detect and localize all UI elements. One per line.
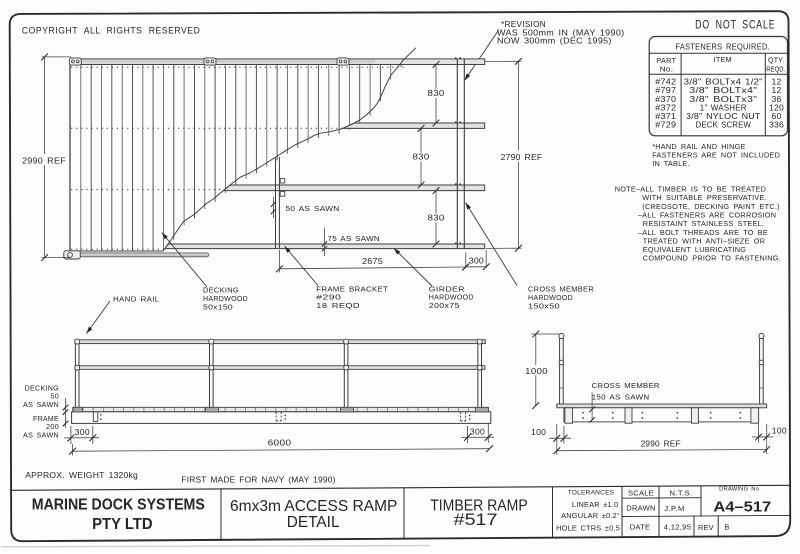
- svg-text:DRAWING No.: DRAWING No.: [719, 486, 761, 492]
- svg-text:DO NOT SCALE: DO NOT SCALE: [695, 17, 775, 31]
- svg-text:100: 100: [772, 426, 787, 435]
- svg-text:18 REQD: 18 REQD: [316, 301, 360, 310]
- svg-text:COPYRIGHT ALL RIGHTS RESERVED: COPYRIGHT ALL RIGHTS RESERVED: [22, 26, 201, 36]
- svg-text:#729: #729: [655, 121, 676, 130]
- svg-text:6mx3m ACCESS RAMP: 6mx3m ACCESS RAMP: [230, 498, 397, 515]
- svg-text:J.P.M: J.P.M: [664, 504, 684, 513]
- svg-text:FIRST MADE FOR NAVY (MAY 1990): FIRST MADE FOR NAVY (MAY 1990): [181, 475, 335, 485]
- svg-text:SCALE: SCALE: [628, 488, 654, 497]
- svg-text:CROSS MEMBER: CROSS MEMBER: [528, 284, 594, 293]
- svg-text:REV: REV: [698, 523, 714, 532]
- svg-text:FASTENERS REQUIRED.: FASTENERS REQUIRED.: [675, 43, 770, 52]
- svg-text:WITH SUITABLE PRESERVATIVE.: WITH SUITABLE PRESERVATIVE.: [642, 193, 767, 202]
- svg-text:APPROX. WEIGHT 1320kg: APPROX. WEIGHT 1320kg: [25, 470, 138, 480]
- svg-text:150x50: 150x50: [528, 302, 560, 311]
- svg-text:2790 REF: 2790 REF: [501, 153, 543, 162]
- svg-text:REQD.: REQD.: [766, 65, 785, 74]
- svg-text:A4–517: A4–517: [713, 499, 771, 516]
- svg-text:75 AS SAWN: 75 AS SAWN: [328, 234, 381, 243]
- svg-text:NOW 300mm (DEC 1995): NOW 300mm (DEC 1995): [497, 37, 612, 46]
- svg-text:AS SAWN: AS SAWN: [23, 400, 59, 409]
- svg-text:RESISTAINT STAINLESS STEEL.: RESISTAINT STAINLESS STEEL.: [643, 219, 764, 228]
- svg-text:6000: 6000: [268, 439, 292, 448]
- svg-text:DETAIL: DETAIL: [287, 514, 340, 531]
- svg-text:HAND RAIL: HAND RAIL: [113, 295, 160, 304]
- svg-text:100: 100: [531, 428, 546, 437]
- svg-text:(CREOSOTE, DECKING PAINT ETC.): (CREOSOTE, DECKING PAINT ETC.): [642, 202, 780, 211]
- svg-text:AS SAWN: AS SAWN: [23, 431, 59, 440]
- svg-text:N.T.S.: N.T.S.: [669, 488, 692, 497]
- svg-text:HOLE CTRS ±0.5: HOLE CTRS ±0.5: [556, 523, 620, 532]
- svg-text:ANGULAR ±0.2°: ANGULAR ±0.2°: [561, 511, 620, 520]
- svg-text:DECK SCREW: DECK SCREW: [696, 121, 752, 130]
- svg-text:#517: #517: [454, 511, 498, 529]
- svg-text:300: 300: [470, 427, 485, 436]
- svg-text:336: 336: [769, 121, 784, 130]
- svg-text:TOLERANCES: TOLERANCES: [568, 489, 615, 496]
- svg-text:830: 830: [428, 214, 445, 223]
- svg-text:–ALL FASTENERS ARE CORROSION: –ALL FASTENERS ARE CORROSION: [638, 210, 776, 219]
- svg-text:NOTE–ALL TIMBER IS TO BE TREAT: NOTE–ALL TIMBER IS TO BE TREATED: [615, 185, 767, 194]
- svg-text:PTY LTD: PTY LTD: [92, 516, 153, 533]
- svg-text:ITEM: ITEM: [714, 55, 732, 64]
- svg-text:QTY.: QTY.: [768, 55, 784, 64]
- svg-text:150 AS SAWN: 150 AS SAWN: [592, 393, 650, 402]
- svg-text:2990 REF: 2990 REF: [22, 156, 66, 165]
- svg-text:HARDWOOD: HARDWOOD: [528, 293, 573, 302]
- svg-text:300: 300: [75, 428, 90, 437]
- svg-text:830: 830: [428, 89, 445, 98]
- svg-text:DATE: DATE: [630, 522, 651, 531]
- svg-text:COMPOUND PRIOR TO FASTENING.: COMPOUND PRIOR TO FASTENING.: [643, 254, 781, 263]
- svg-text:DRAWN: DRAWN: [626, 503, 655, 512]
- svg-text:50 AS SAWN: 50 AS SAWN: [286, 204, 340, 213]
- svg-text:LINEAR ±1.0: LINEAR ±1.0: [572, 500, 618, 509]
- svg-text:1000: 1000: [525, 367, 548, 376]
- svg-text:No.: No.: [660, 64, 673, 73]
- svg-text:2675: 2675: [362, 257, 383, 266]
- svg-text:300: 300: [469, 256, 485, 265]
- svg-text:B: B: [724, 523, 729, 532]
- svg-text:4,12,95: 4,12,95: [664, 522, 691, 531]
- svg-text:50x150: 50x150: [203, 302, 233, 311]
- svg-text:830: 830: [413, 153, 430, 162]
- svg-text:200x75: 200x75: [429, 301, 460, 310]
- svg-text:IN TABLE.: IN TABLE.: [652, 159, 690, 168]
- svg-text:TREATED WITH ANTI–SIEZE OR: TREATED WITH ANTI–SIEZE OR: [643, 236, 765, 245]
- svg-text:EQUIVALENT LUBRICATING: EQUIVALENT LUBRICATING: [643, 245, 746, 254]
- svg-text:–ALL BOLT THREADS ARE TO BE: –ALL BOLT THREADS ARE TO BE: [638, 228, 768, 237]
- svg-text:MARINE DOCK SYSTEMS: MARINE DOCK SYSTEMS: [32, 497, 205, 514]
- svg-text:CROSS MEMBER: CROSS MEMBER: [592, 381, 660, 390]
- svg-text:2990 REF: 2990 REF: [641, 439, 681, 448]
